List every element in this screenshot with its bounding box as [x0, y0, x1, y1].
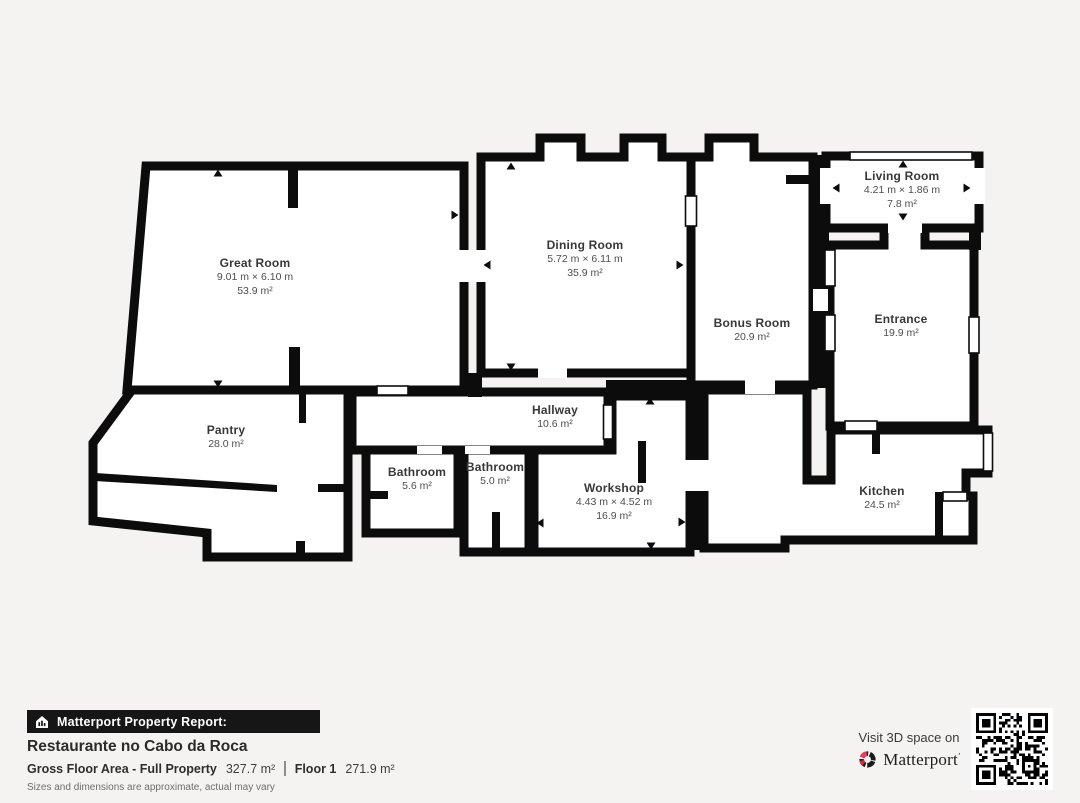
room-pantry: [93, 390, 348, 557]
floor-area-value: 271.9 m²: [345, 762, 394, 776]
qr-code-pattern: [976, 713, 1048, 785]
brand-row: Matterport’: [848, 749, 970, 770]
floor-plan: [0, 0, 1080, 803]
visit-3d-cta: Visit 3D space on Matterport’: [848, 730, 970, 770]
brand-wordmark: Matterport’: [883, 750, 961, 770]
property-name: Restaurante no Cabo da Roca: [27, 738, 248, 756]
report-bar-label: Matterport Property Report:: [57, 715, 227, 729]
room-dining-room: [481, 138, 691, 373]
gross-area-label: Gross Floor Area - Full Property: [27, 762, 217, 776]
gross-area-value: 327.7 m²: [226, 762, 275, 776]
floor-label: Floor 1: [295, 762, 337, 776]
report-bar: Matterport Property Report:: [27, 710, 320, 733]
visit-text: Visit 3D space on: [848, 730, 970, 745]
matterport-logo: [857, 749, 878, 770]
house-chart-icon: [35, 715, 49, 729]
floor-area-stats: Gross Floor Area - Full Property 327.7 m…: [27, 761, 395, 776]
rooms: [93, 138, 988, 557]
property-report-page: Great Room9.01 m × 6.10 m53.9 m²Dining R…: [0, 0, 1080, 803]
disclaimer-text: Sizes and dimensions are approximate, ac…: [27, 782, 275, 793]
qr-code: [971, 708, 1053, 790]
room-entrance: [830, 228, 974, 426]
stat-divider: [284, 761, 286, 776]
room-hallway: [352, 392, 608, 450]
